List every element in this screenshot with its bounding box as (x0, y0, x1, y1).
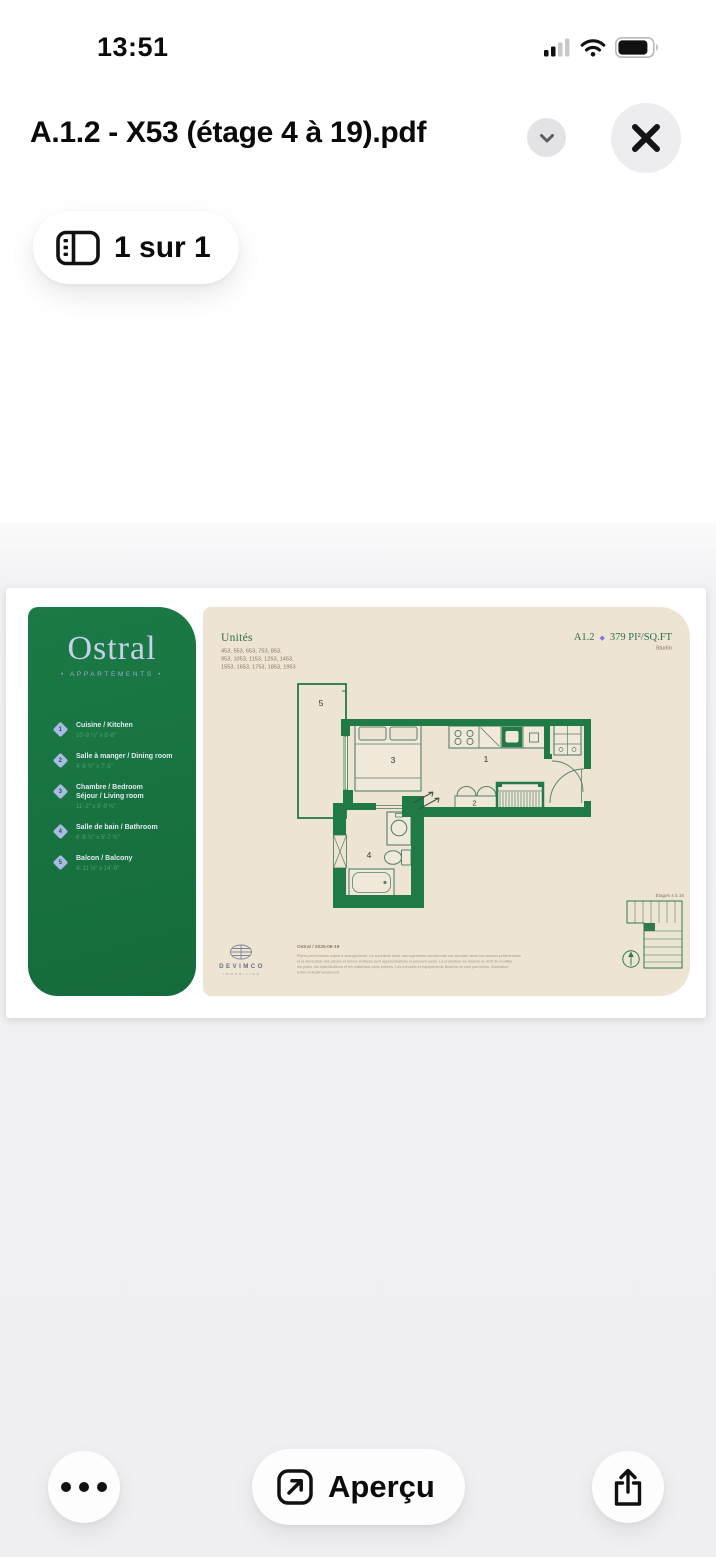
legend-title-2: Séjour / Living room (76, 793, 144, 802)
legend-diamond-icon: 4 (53, 823, 69, 839)
wifi-icon (580, 38, 606, 57)
north-compass-icon (623, 951, 639, 967)
brand-panel: Ostral • APPARTEMENTS • 1 Cuisine / Kitc… (28, 607, 196, 996)
room-label-balcony: 5 (319, 698, 324, 708)
balcony-window-wall (344, 736, 348, 790)
share-button[interactable] (592, 1451, 664, 1523)
floor-plan-panel: Unités 453, 553, 653, 753, 853, 953, 105… (203, 607, 690, 996)
title-menu-button[interactable] (527, 118, 566, 157)
logo-text: DEVIMCO (219, 963, 265, 970)
document-title: A.1.2 - X53 (étage 4 à 19).pdf (30, 116, 426, 150)
room-label-bedroom: 3 (391, 755, 396, 765)
legend-diamond-icon: 1 (53, 722, 69, 738)
units-line: 1553, 1653, 1753, 1853, 1953 (221, 665, 296, 671)
logo-subtext: IMMOBILIER (223, 972, 261, 976)
plan-code-area: A1.2◆379 PI²/SQ.FT (574, 632, 673, 643)
bottom-toolbar: Aperçu (0, 1417, 716, 1557)
legend-item-balcony: 5 Balcon / Balcony 4'-11 ½" x 14'-9" (55, 855, 186, 872)
page-indicator-label: 1 sur 1 (114, 231, 211, 265)
legend-dimensions: 4'-11 ½" x 14'-9" (76, 866, 132, 872)
legend-diamond-icon: 5 (53, 854, 69, 870)
pdf-page[interactable]: Ostral • APPARTEMENTS • 1 Cuisine / Kitc… (6, 588, 706, 1018)
disclaimer-line: à titre indicatif seulement. (297, 971, 340, 975)
legend-diamond-icon: 3 (53, 784, 69, 800)
units-line: 953, 1053, 1153, 1253, 1453, (221, 657, 294, 663)
units-line: 453, 553, 653, 753, 853, (221, 649, 282, 655)
status-bar: 13:51 (0, 0, 716, 70)
legend-item-kitchen: 1 Cuisine / Kitchen 10'-9 ¼" x 8'-8" (55, 722, 186, 739)
brand-name: Ostral (28, 632, 196, 666)
plan-footer-text: Ostral / 2025-08-19 Plans préliminaires … (297, 944, 521, 975)
key-plan: Étages 4 à 19 (623, 892, 685, 968)
kitchen-island (497, 783, 543, 809)
brand-tagline: • APPARTEMENTS • (28, 671, 196, 678)
floor-plan-drawing: Unités 453, 553, 653, 753, 853, 953, 105… (203, 607, 690, 996)
disclaimer-line: et la dimension des pièces et autres sur… (297, 960, 513, 964)
legend-title: Cuisine / Kitchen (76, 722, 133, 731)
share-icon (610, 1466, 646, 1508)
title-bar: A.1.2 - X53 (étage 4 à 19).pdf (0, 96, 716, 180)
units-heading: Unités (221, 632, 253, 644)
legend-dimensions: 11'-2" x 9'-0 ½" (76, 804, 144, 810)
key-plan-label: Étages 4 à 19 (656, 892, 685, 898)
chevron-down-icon (537, 128, 557, 148)
legend-title: Balcon / Balcony (76, 855, 132, 864)
ellipsis-icon (61, 1482, 107, 1492)
preview-label: Aperçu (328, 1469, 435, 1505)
room-legend: 1 Cuisine / Kitchen 10'-9 ¼" x 8'-8" 2 S… (28, 722, 196, 872)
room-label-kitchen: 1 (484, 754, 489, 764)
disclaimer-line: Plans préliminaires sujets à changements… (297, 954, 521, 958)
close-icon (629, 121, 663, 155)
quicklook-screen: 13:51 A.1.2 - X53 (étage 4 à 19).pdf (0, 0, 716, 1557)
disclaimer-line: les plans, les spécifications et les mat… (297, 965, 508, 969)
devimco-logo: DEVIMCO IMMOBILIER (219, 945, 265, 976)
legend-title: Chambre / Bedroom (76, 784, 144, 793)
cellular-icon (544, 38, 571, 57)
legend-dimensions: 4'-8 ½" x 7'-5" (76, 764, 172, 770)
legend-item-bedroom: 3 Chambre / Bedroom Séjour / Living room… (55, 784, 186, 810)
diamond-separator: ◆ (600, 634, 606, 642)
close-button[interactable] (611, 103, 681, 173)
more-button[interactable] (48, 1451, 120, 1523)
legend-title: Salle de bain / Bathroom (76, 824, 158, 833)
legend-diamond-icon: 2 (53, 753, 69, 769)
door-swings (550, 761, 584, 803)
legend-title: Salle à manger / Dining room (76, 753, 172, 762)
legend-item-bathroom: 4 Salle de bain / Bathroom 6'-8 ½" x 5'-… (55, 824, 186, 841)
page-indicator-pill[interactable]: 1 sur 1 (33, 211, 239, 284)
battery-icon (615, 37, 660, 58)
preview-button[interactable]: Aperçu (252, 1449, 465, 1525)
legend-item-dining: 2 Salle à manger / Dining room 4'-8 ½" x… (55, 753, 186, 770)
open-external-icon (276, 1468, 314, 1506)
status-time: 13:51 (97, 32, 169, 63)
legend-dimensions: 10'-9 ¼" x 8'-8" (76, 733, 133, 739)
status-icons (544, 37, 660, 58)
room-label-bathroom: 4 (367, 850, 372, 860)
room-label-dining: 2 (472, 799, 476, 808)
plan-type: Studio (656, 646, 672, 652)
date-line: Ostral / 2025-08-19 (297, 944, 340, 950)
sidebar-pages-icon (55, 229, 101, 267)
legend-dimensions: 6'-8 ½" x 5'-7 ¾" (76, 835, 158, 841)
highlighted-unit (644, 923, 655, 931)
